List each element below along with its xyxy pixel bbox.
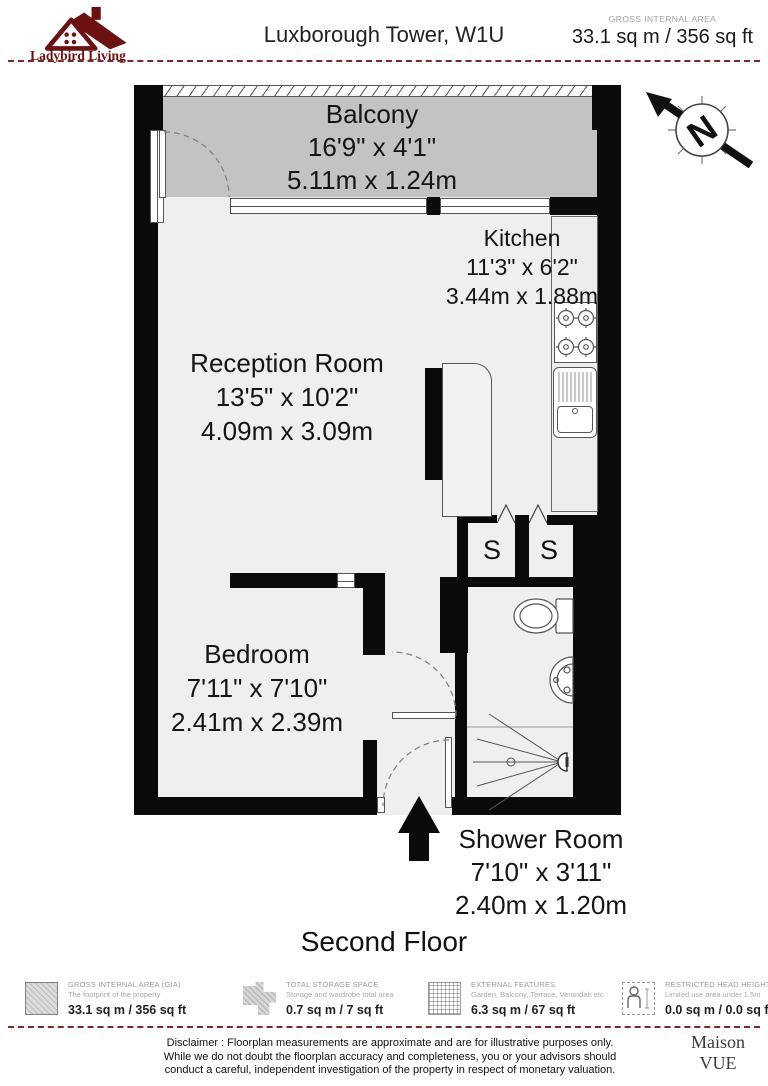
floor-name-label: Second Floor [0,926,768,958]
north-compass-icon: N [646,92,751,165]
disclaimer-text: Disclaimer : Floorplan measurements are … [110,1037,670,1078]
bifold-doors [497,505,547,523]
person-height-icon [622,982,655,1015]
toilet-icon [514,599,573,633]
shower-icon [467,714,573,810]
storage-label: S [540,535,558,566]
footer-separator [8,1026,760,1028]
balcony-label: Balcony16'9" x 4'1"5.11m x 1.24m [197,98,547,197]
shower-room-label: Shower Room7'10" x 3'11"2.40m x 1.20m [421,823,661,922]
sink-drainer-icon [559,372,591,414]
hatched-square-icon [25,982,58,1015]
reception-room-label: Reception Room13'5" x 10'2"4.09m x 3.09m [147,346,427,448]
floorplan-page: Ladybird Living Luxborough Tower, W1U GR… [0,0,768,1086]
bedroom-label: Bedroom7'11" x 7'10"2.41m x 2.39m [137,637,377,739]
kitchen-label: Kitchen11'3" x 6'2"3.44m x 1.88m [432,224,612,311]
storage-label: S [483,535,501,566]
grid-square-icon [428,982,461,1015]
basin-icon [550,657,573,703]
hob-burners-icon [556,308,596,357]
maison-vue-logo: Maison VUE [672,1032,764,1074]
